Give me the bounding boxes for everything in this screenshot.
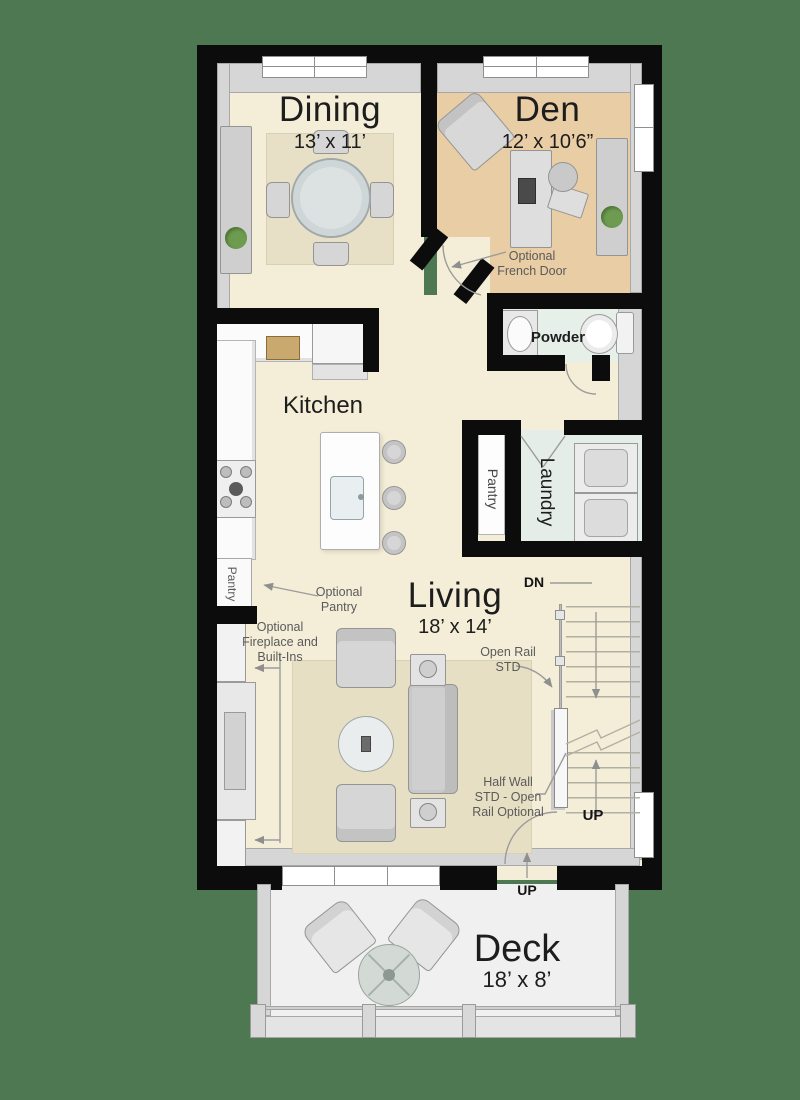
- wall-segment: [487, 293, 660, 309]
- deck-rail: [250, 1016, 636, 1038]
- window-mullion: [536, 56, 537, 78]
- dining-chair: [370, 182, 394, 218]
- lamp-icon: [419, 660, 437, 678]
- pantry-closet-label: Pantry: [484, 463, 500, 515]
- wall-segment: [592, 355, 610, 381]
- floor-plan: Dining 13’ x 11’ Den 12’ x 10’6” Kitchen…: [0, 0, 800, 1100]
- den-dims: 12’ x 10’6”: [455, 132, 640, 153]
- open-rail-note: Open Rail STD: [472, 645, 544, 675]
- den-console: [596, 138, 628, 256]
- den-laptop: [518, 178, 536, 204]
- stairs-upper-flight: [566, 606, 640, 706]
- dryer-door: [584, 499, 628, 537]
- washer-door: [584, 449, 628, 487]
- deck-rail: [615, 884, 629, 1016]
- bar-stool: [382, 531, 406, 555]
- wall-segment: [363, 308, 379, 372]
- wall-segment: [487, 355, 565, 371]
- wall-segment: [462, 541, 660, 557]
- burner-icon: [240, 496, 252, 508]
- window-mullion: [387, 866, 388, 886]
- rail-post: [555, 610, 565, 620]
- laundry-label: Laundry: [536, 447, 556, 537]
- deck-dims: 18’ x 8’: [417, 968, 617, 991]
- den-label: Den: [455, 92, 640, 129]
- window-mullion: [483, 66, 589, 67]
- wall-segment: [505, 420, 521, 541]
- dining-dims: 13’ x 11’: [230, 132, 430, 153]
- counter-by-fridge: [312, 364, 368, 380]
- wall-segment: [564, 420, 642, 435]
- living-dims: 18’ x 14’: [355, 617, 555, 638]
- dining-label: Dining: [230, 92, 430, 129]
- wall-segment: [440, 866, 497, 890]
- plant-icon: [601, 206, 623, 228]
- deck-table-center: [383, 969, 395, 981]
- wall-segment: [197, 45, 217, 890]
- kitchen-label: Kitchen: [253, 393, 393, 418]
- rail-post: [250, 1004, 266, 1038]
- burner-icon: [220, 466, 232, 478]
- window-mullion: [334, 866, 335, 886]
- window: [282, 866, 440, 886]
- refrigerator: [312, 322, 364, 364]
- dining-chair: [313, 242, 349, 266]
- bar-stool: [382, 486, 406, 510]
- up-stairs-label: UP: [573, 808, 613, 824]
- stove-center: [229, 482, 243, 496]
- dining-chair: [266, 182, 290, 218]
- armchair: [336, 784, 396, 842]
- deck-rail: [257, 884, 271, 1016]
- rail-post: [362, 1004, 376, 1038]
- cutting-board: [266, 336, 300, 360]
- rail-post: [555, 656, 565, 666]
- deck-label: Deck: [417, 930, 617, 970]
- half-wall-note: Half Wall STD - Open Rail Optional: [458, 775, 558, 820]
- wall-segment: [487, 293, 503, 363]
- lamp-icon: [419, 803, 437, 821]
- faucet-icon: [358, 494, 364, 500]
- plant-icon: [225, 227, 247, 249]
- sofa: [408, 684, 458, 794]
- fireplace-note: Optional Fireplace and Built-Ins: [226, 620, 334, 665]
- den-office-chair: [548, 162, 578, 192]
- wall-segment: [462, 420, 478, 541]
- bar-stool: [382, 440, 406, 464]
- dn-label: DN: [514, 575, 554, 590]
- wall-segment: [557, 866, 660, 890]
- window-mullion: [262, 66, 367, 67]
- optional-pantry-note: Optional Pantry: [303, 585, 375, 615]
- up-deck-label: UP: [507, 883, 547, 898]
- burner-icon: [220, 496, 232, 508]
- fireplace-firebox: [224, 712, 246, 790]
- kitchen-counter-left: [214, 340, 256, 560]
- window-mullion: [314, 56, 315, 78]
- powder-label: Powder: [518, 330, 598, 346]
- deck-rail: [257, 1006, 629, 1010]
- rail-post: [620, 1004, 636, 1038]
- dining-table: [291, 158, 371, 238]
- french-door-note: Optional French Door: [490, 249, 574, 279]
- wall-segment: [197, 308, 379, 324]
- rail-post: [462, 1004, 476, 1038]
- coffee-table-item: [361, 736, 371, 752]
- burner-icon: [240, 466, 252, 478]
- optional-pantry-cabinet-label: Pantry: [224, 563, 238, 605]
- stairs-lower-flight: [566, 752, 640, 814]
- toilet-tank: [616, 312, 634, 354]
